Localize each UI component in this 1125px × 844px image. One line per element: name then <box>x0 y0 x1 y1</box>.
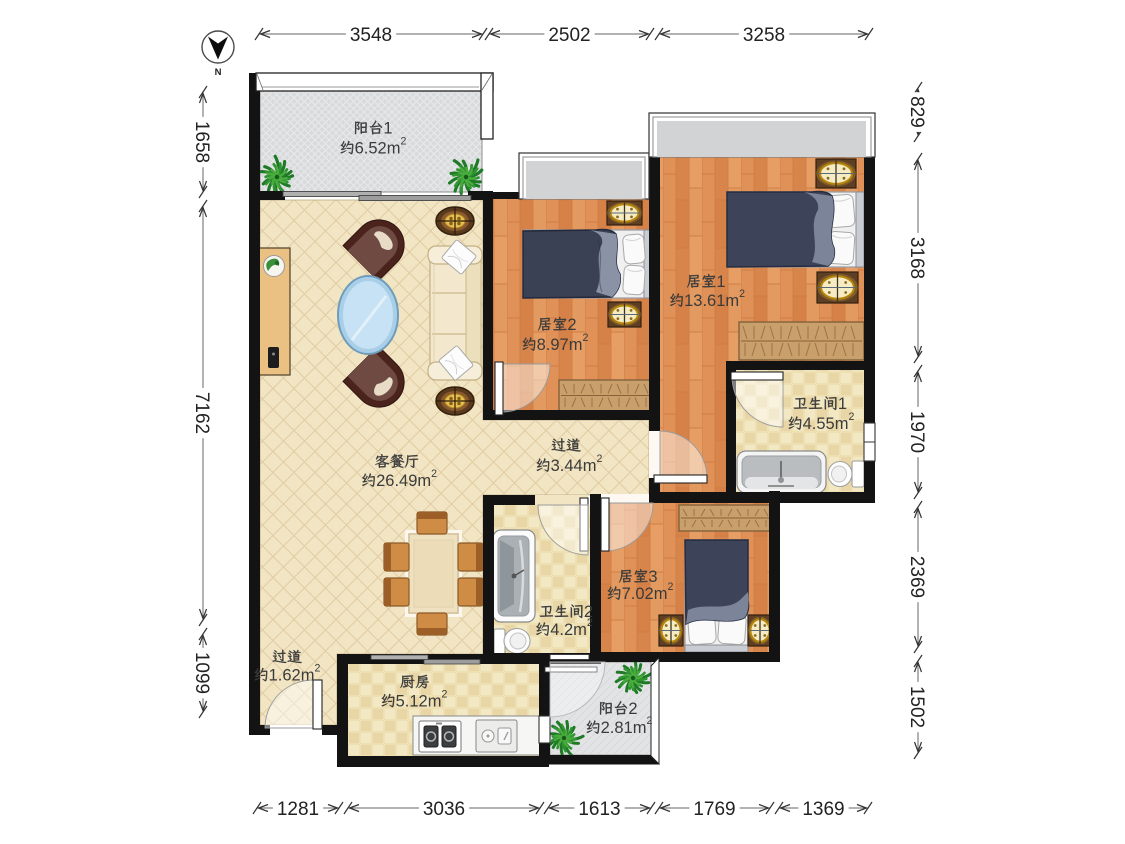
svg-text:2: 2 <box>668 581 674 593</box>
svg-text:5.12m: 5.12m <box>396 692 442 710</box>
svg-text:1099: 1099 <box>191 652 212 694</box>
svg-text:2: 2 <box>431 468 437 480</box>
svg-text:7.02m: 7.02m <box>622 585 668 603</box>
svg-text:1: 1 <box>838 395 847 413</box>
svg-text:N: N <box>215 67 222 78</box>
svg-text:1658: 1658 <box>191 121 212 163</box>
svg-text:2: 2 <box>628 700 637 718</box>
svg-text:1369: 1369 <box>802 799 844 820</box>
svg-text:1281: 1281 <box>277 799 319 820</box>
svg-text:2: 2 <box>583 332 589 344</box>
svg-text:2369: 2369 <box>906 556 927 598</box>
svg-text:2: 2 <box>315 663 321 675</box>
svg-text:1: 1 <box>383 119 392 137</box>
svg-text:1.62m: 1.62m <box>269 666 315 684</box>
svg-text:1: 1 <box>716 273 725 291</box>
svg-text:2: 2 <box>597 453 603 465</box>
svg-text:3258: 3258 <box>743 25 785 46</box>
svg-text:7162: 7162 <box>191 392 212 434</box>
svg-text:2: 2 <box>739 288 745 300</box>
svg-text:4.55m: 4.55m <box>803 415 849 433</box>
svg-text:3.44m: 3.44m <box>551 457 597 475</box>
svg-text:2: 2 <box>567 316 576 334</box>
svg-text:26.49m: 26.49m <box>376 472 431 490</box>
svg-text:2: 2 <box>647 715 653 727</box>
svg-text:2: 2 <box>442 689 448 701</box>
svg-text:3168: 3168 <box>906 237 927 279</box>
svg-text:13.61m: 13.61m <box>684 292 739 310</box>
svg-text:2.81m: 2.81m <box>601 719 647 737</box>
svg-text:2: 2 <box>587 617 593 629</box>
svg-text:2: 2 <box>849 411 855 423</box>
svg-text:2502: 2502 <box>548 25 590 46</box>
svg-text:1970: 1970 <box>906 411 927 453</box>
svg-text:1613: 1613 <box>578 799 620 820</box>
svg-text:3548: 3548 <box>350 25 392 46</box>
svg-text:6.52m: 6.52m <box>355 139 401 157</box>
svg-text:829: 829 <box>906 96 927 128</box>
svg-text:1769: 1769 <box>693 799 735 820</box>
svg-text:4.2m: 4.2m <box>550 621 587 639</box>
svg-text:3: 3 <box>648 568 657 586</box>
svg-text:2: 2 <box>401 136 407 148</box>
svg-text:1502: 1502 <box>906 686 927 728</box>
svg-text:8.97m: 8.97m <box>537 336 583 354</box>
svg-text:3036: 3036 <box>423 799 465 820</box>
